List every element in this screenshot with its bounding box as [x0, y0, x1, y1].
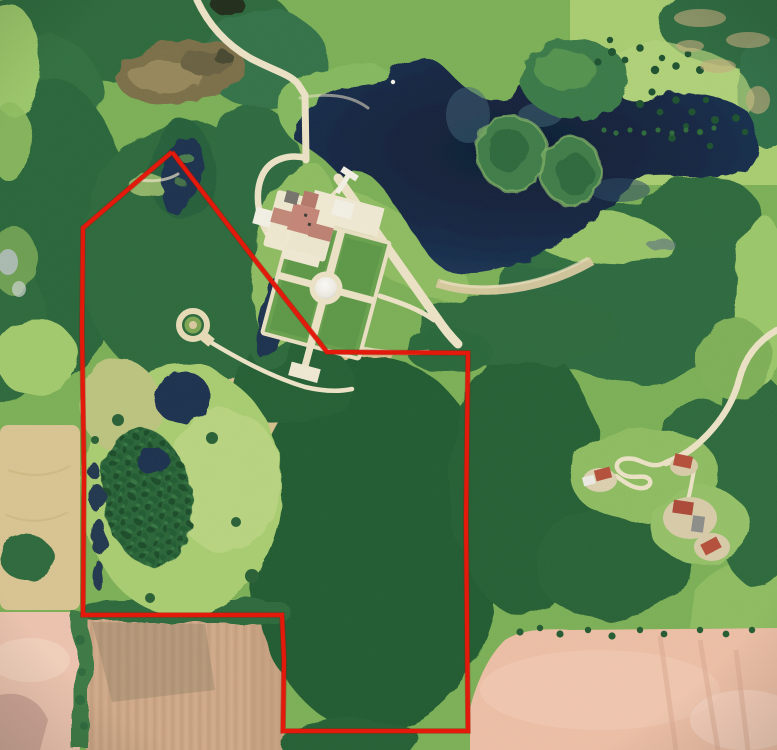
vignette	[0, 0, 777, 750]
aerial-canvas	[0, 0, 777, 750]
aerial-image	[0, 0, 777, 750]
